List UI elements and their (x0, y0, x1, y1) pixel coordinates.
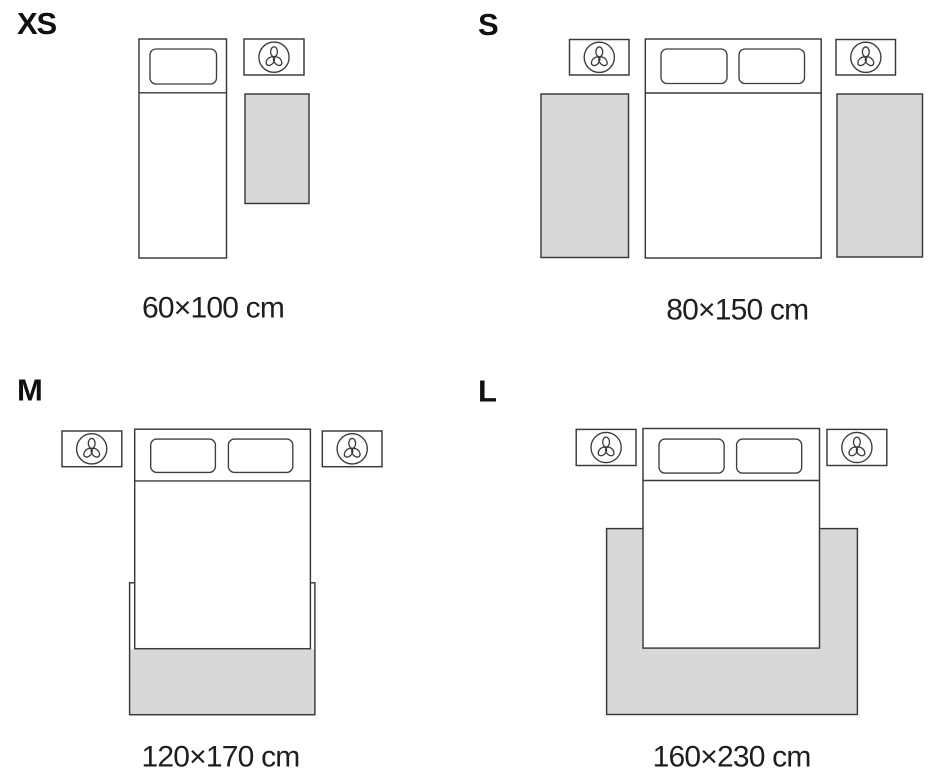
svg-text:120×170 cm: 120×170 cm (142, 740, 300, 773)
svg-text:60×100 cm: 60×100 cm (142, 292, 284, 325)
svg-text:160×230 cm: 160×230 cm (653, 740, 811, 773)
svg-text:S: S (478, 7, 498, 42)
svg-text:80×150 cm: 80×150 cm (666, 294, 808, 327)
svg-text:XS: XS (17, 6, 56, 41)
svg-text:L: L (478, 374, 496, 409)
svg-text:M: M (17, 373, 42, 408)
